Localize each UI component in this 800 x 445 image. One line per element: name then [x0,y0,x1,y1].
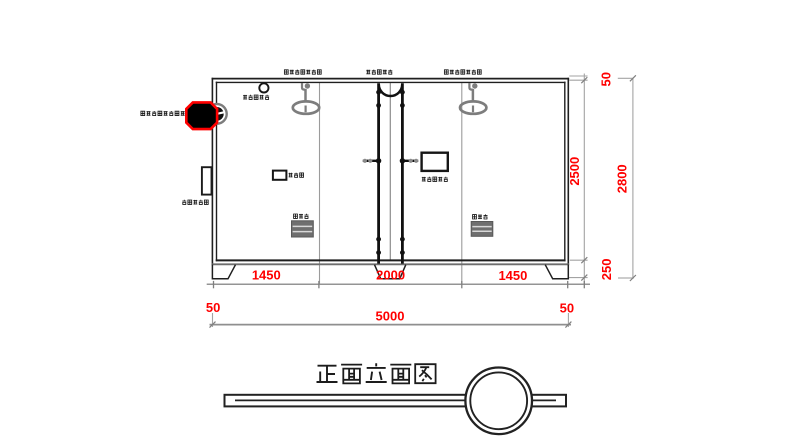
svg-text:2500: 2500 [567,157,582,186]
svg-text:1450: 1450 [252,267,281,282]
svg-text:5000: 5000 [376,309,405,324]
svg-text:2000: 2000 [376,268,405,283]
svg-text:1450: 1450 [498,268,527,283]
svg-text:250: 250 [599,259,614,281]
svg-text:2800: 2800 [614,164,629,193]
svg-text:50: 50 [598,72,613,86]
svg-text:50: 50 [206,300,220,315]
svg-text:50: 50 [560,300,574,315]
